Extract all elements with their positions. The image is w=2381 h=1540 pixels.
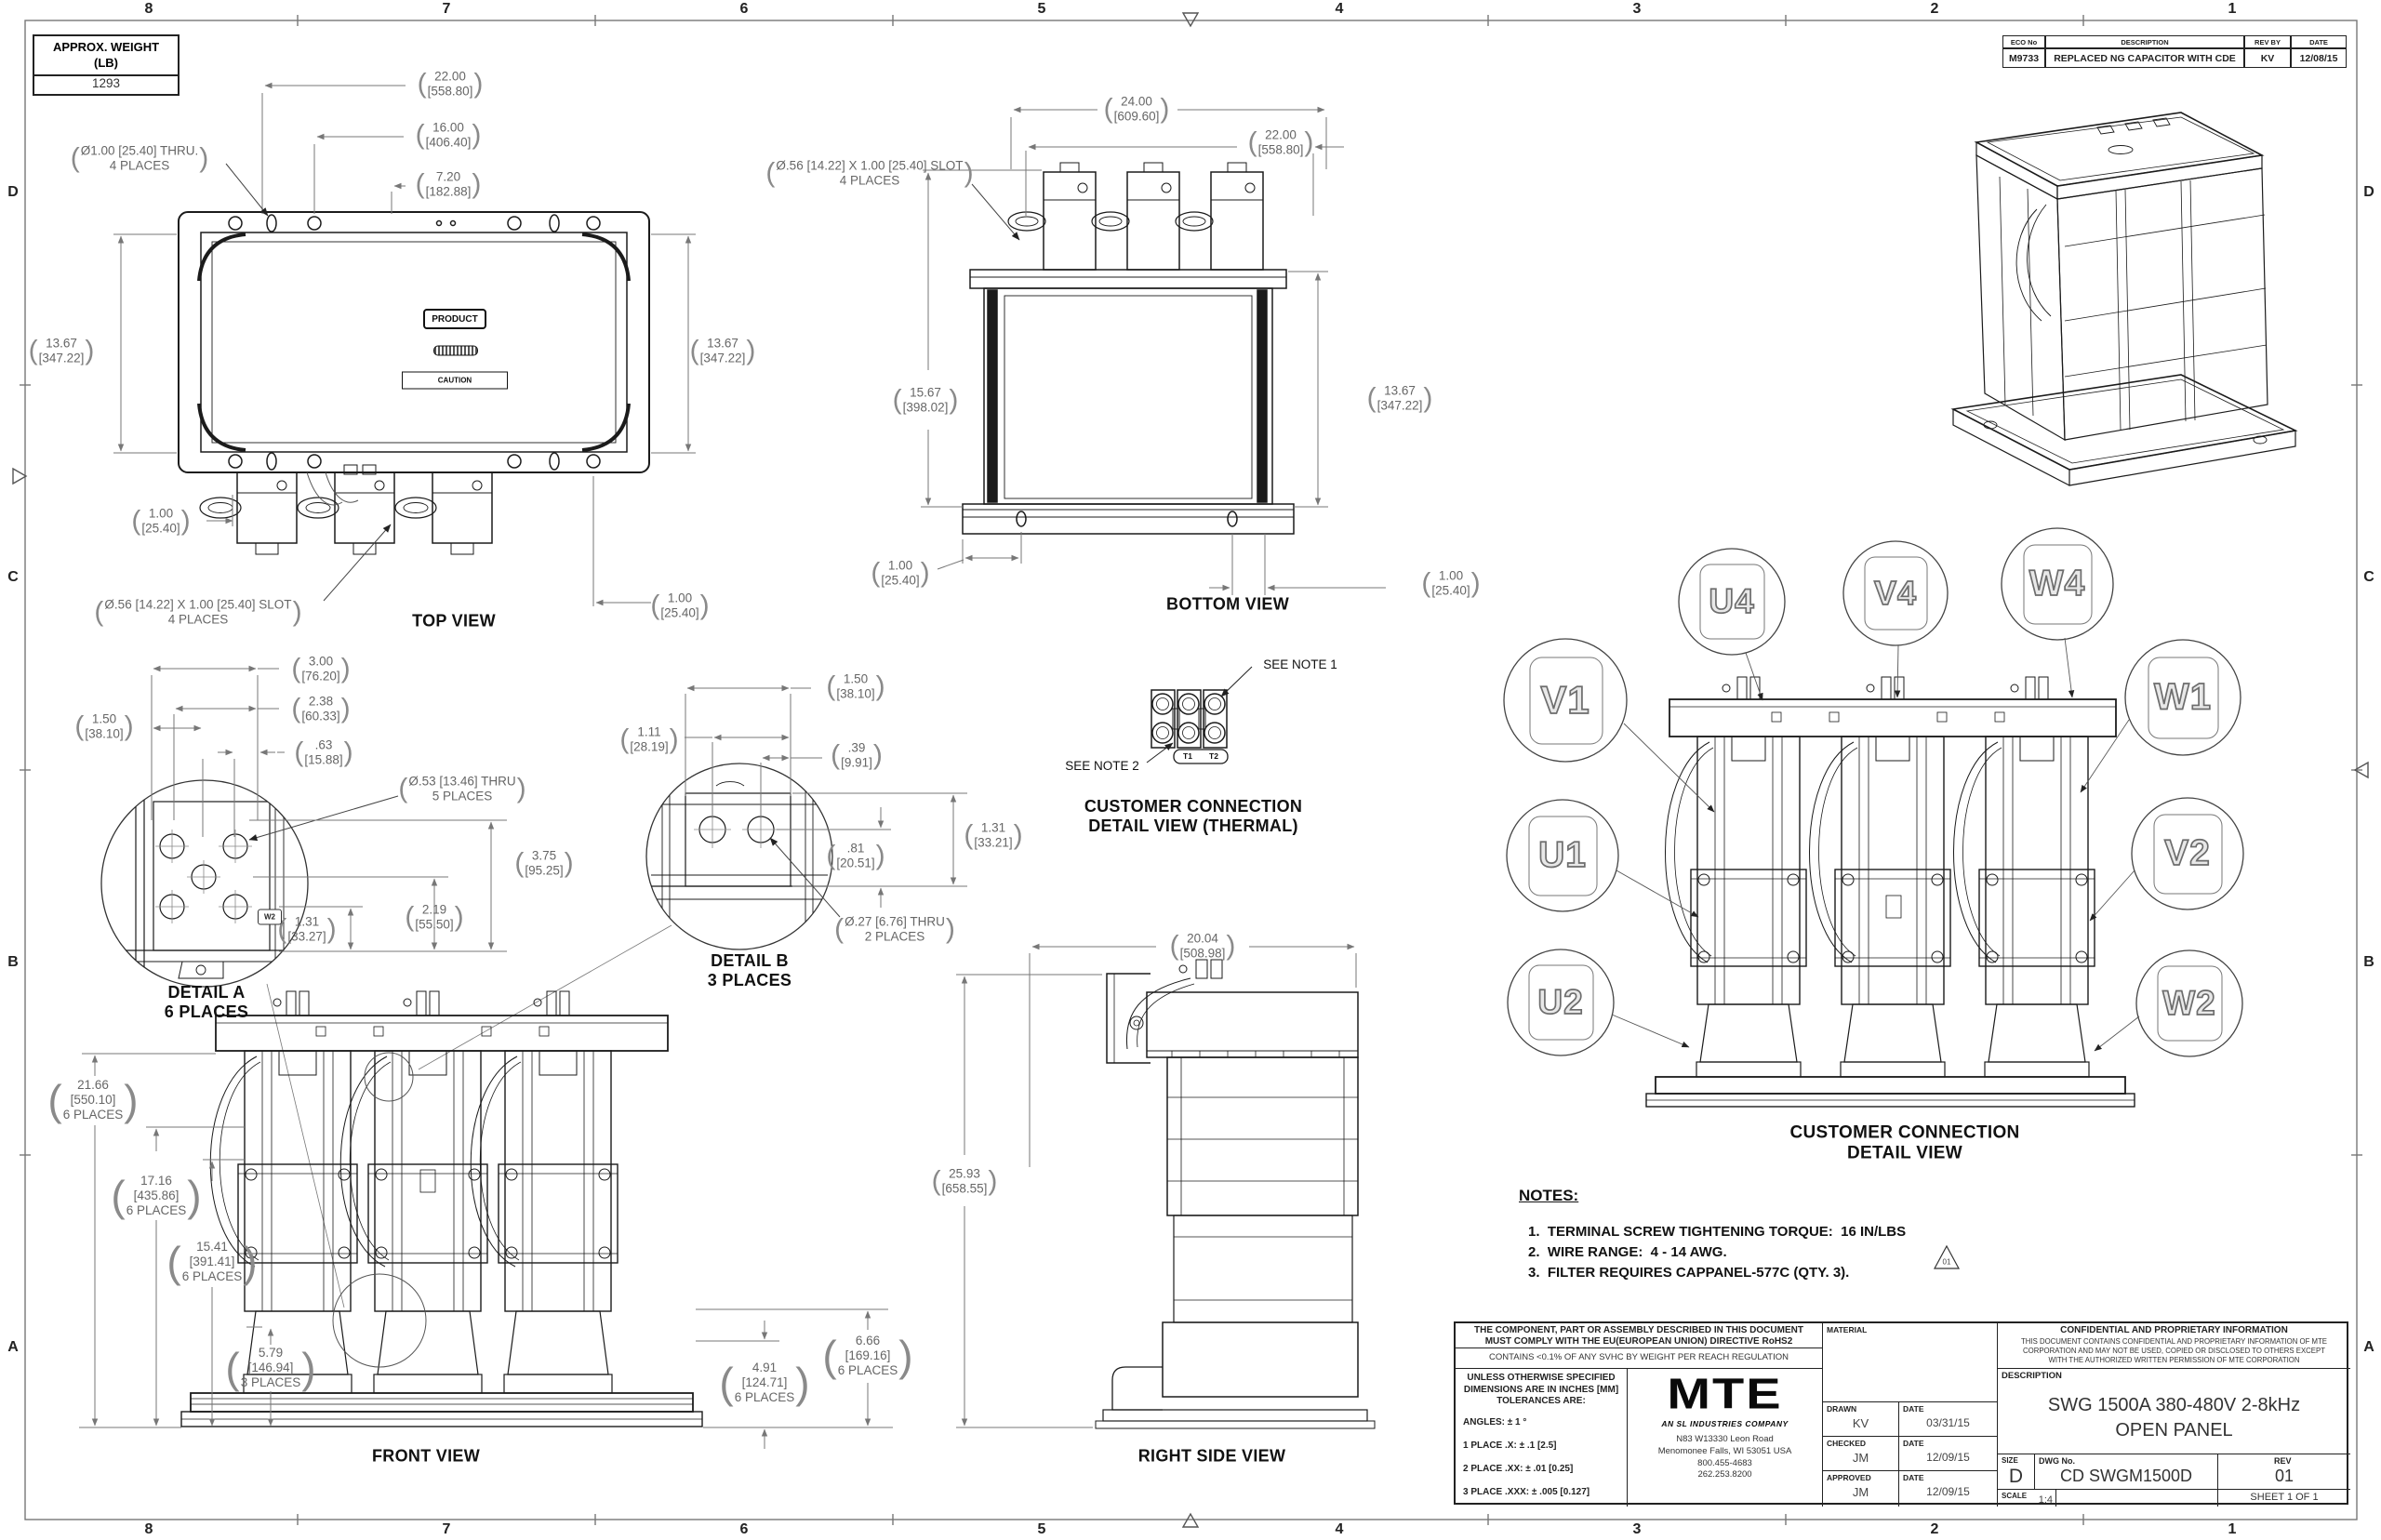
tolerance-angles: ANGLES: ± 1 °	[1463, 1417, 1526, 1427]
thermal-detail-linework	[1147, 667, 1252, 763]
rev-value: 01	[2218, 1467, 2350, 1486]
dim-front-h5: 4.91 [124.71] 6 PLACES	[718, 1358, 810, 1408]
dim-bottom-offset-right: 1.00 [25.40]	[1420, 566, 1481, 599]
zone-col-6-bottom: 6	[740, 1521, 749, 1538]
terminal-u2-label: U2	[1537, 983, 1583, 1022]
zone-col-2-bottom: 2	[1931, 1521, 1939, 1538]
thermal-t1-label: T1	[1183, 751, 1192, 761]
tolerance-place3: 3 PLACE .XXX: ± .005 [0.127]	[1463, 1487, 1590, 1497]
dim-right-depth: 20.04 [508.98]	[1169, 929, 1237, 962]
dim-front-h6: 6.66 [169.16] 6 PLACES	[821, 1331, 913, 1381]
eco-header-description: DESCRIPTION	[2045, 35, 2244, 48]
isometric-view-linework	[1953, 113, 2295, 485]
eco-cell-description: REPLACED NG CAPACITOR WITH CDE	[2045, 48, 2244, 68]
dim-detail-b-2: 1.11 [28.19]	[619, 723, 679, 755]
zone-col-2-top: 2	[1931, 1, 1939, 18]
nameplate-label	[433, 346, 478, 356]
weight-box-value: 1293	[34, 73, 178, 94]
material-label: MATERIAL	[1827, 1325, 1867, 1334]
confidential-body: THIS DOCUMENT CONTAINS CONFIDENTIAL AND …	[1998, 1337, 2350, 1365]
dim-front-h3: 15.41 [391.41] 6 PLACES	[166, 1237, 258, 1287]
tolerance-cell: UNLESS OTHERWISE SPECIFIED DIMENSIONS AR…	[1456, 1369, 1628, 1507]
dwg-number: CD SWGM1500D	[2035, 1467, 2217, 1486]
sheet-cell: SHEET 1 OF 1	[2218, 1490, 2350, 1507]
terminal-u1-label: U1	[1538, 835, 1587, 876]
dwg-label: DWG No.	[2039, 1456, 2075, 1466]
thermal-t2-label: T2	[1209, 751, 1218, 761]
terminal-w2-label: W2	[2162, 984, 2216, 1023]
dim-detail-a-3: 2.38 [60.33]	[290, 692, 351, 724]
approved-label: APPROVED	[1827, 1473, 1871, 1482]
title-bottom-view: BOTTOM VIEW	[1166, 594, 1289, 614]
dim-detail-b-3: .39 [9.91]	[830, 738, 884, 771]
title-thermal-detail: CUSTOMER CONNECTION DETAIL VIEW (THERMAL…	[1084, 797, 1302, 836]
approved-date: 12/09/15	[1899, 1485, 1997, 1498]
drawn-cell: DRAWN KV	[1823, 1402, 1899, 1437]
terminal-v1-label: V1	[1540, 678, 1590, 723]
zone-row-a-right: A	[2363, 1339, 2374, 1356]
eco-header-date: DATE	[2291, 35, 2347, 48]
material-cell: MATERIAL	[1823, 1323, 1998, 1402]
title-detail-a: DETAIL A 6 PLACES	[165, 983, 248, 1022]
note-top-hole: Ø1.00 [25.40] THRU. 4 PLACES	[70, 141, 210, 174]
bottom-view-linework	[963, 163, 1294, 534]
checked-label: CHECKED	[1827, 1439, 1866, 1448]
zone-col-4-top: 4	[1336, 1, 1344, 18]
note-line-2: 2. WIRE RANGE: 4 - 14 AWG.	[1528, 1244, 1727, 1260]
zone-row-c-right: C	[2363, 569, 2374, 586]
dim-detail-b-4: .81 [20.51]	[825, 839, 885, 871]
zone-row-a-left: A	[7, 1339, 19, 1356]
drawn-label: DRAWN	[1827, 1404, 1856, 1414]
logo-cell: MTE AN SL INDUSTRIES COMPANY N83 W13330 …	[1628, 1369, 1823, 1507]
description-label: DESCRIPTION	[2002, 1371, 2062, 1381]
reach-text: CONTAINS <0.1% OF ANY SVHC BY WEIGHT PER…	[1456, 1352, 1822, 1362]
zone-col-7-top: 7	[443, 1, 451, 18]
checked-date-cell: DATE 12/09/15	[1899, 1437, 1998, 1471]
dim-front-h4: 5.79 [146.94] 3 PLACES	[224, 1343, 316, 1393]
size-value: D	[1998, 1466, 2034, 1488]
dim-bottom-offset-left: 1.00 [25.40]	[870, 556, 930, 589]
notes-heading: NOTES:	[1519, 1187, 1578, 1205]
dim-top-width-small: 7.20 [182.88]	[415, 167, 483, 200]
scale-value: 1:4	[2039, 1494, 2053, 1506]
mte-logo: MTE	[1628, 1369, 1822, 1418]
drawn-date-label: DATE	[1903, 1404, 1924, 1414]
tolerance-place1: 1 PLACE .X: ± .1 [2.5]	[1463, 1440, 1557, 1451]
caution-label: CAUTION	[402, 372, 508, 390]
detail-a-terminal-tag: W2	[258, 909, 282, 925]
checked-name: JM	[1823, 1451, 1898, 1465]
dim-detail-a-2: 3.00 [76.20]	[290, 652, 351, 684]
zone-row-b-right: B	[2363, 954, 2374, 971]
title-block: THE COMPONENT, PART OR ASSEMBLY DESCRIBE…	[1454, 1321, 2348, 1505]
note-top-slot: Ø.56 [14.22] X 1.00 [25.40] SLOT 4 PLACE…	[93, 595, 302, 628]
description-cell: DESCRIPTION SWG 1500A 380-480V 2-8kHz OP…	[1998, 1369, 2350, 1454]
size-cell: SIZE D	[1998, 1454, 2035, 1490]
dim-bottom-height-left: 15.67 [398.02]	[892, 383, 960, 416]
eco-cell-date: 12/08/15	[2291, 48, 2347, 68]
scale-cell: SCALE 1:4	[1998, 1490, 2056, 1507]
tolerance-heading: UNLESS OTHERWISE SPECIFIED DIMENSIONS AR…	[1456, 1373, 1627, 1408]
note-rev-flag: 01	[1943, 1258, 1951, 1267]
dim-detail-b-5: 1.31 [33.21]	[963, 818, 1023, 851]
note-bottom-slot: Ø.56 [14.22] X 1.00 [25.40] SLOT 4 PLACE…	[765, 156, 974, 189]
dim-top-offset-left: 1.00 [25.40]	[130, 504, 191, 537]
compliance-text: THE COMPONENT, PART OR ASSEMBLY DESCRIBE…	[1456, 1325, 1822, 1347]
product-label: PRODUCT	[423, 309, 486, 329]
zone-col-8-top: 8	[145, 1, 153, 18]
dim-right-height: 25.93 [658.55]	[931, 1164, 999, 1197]
scale-label: SCALE	[2002, 1492, 2027, 1500]
dim-detail-a-7: 1.31 [33.27]	[276, 912, 337, 945]
weight-box-label: APPROX. WEIGHT (LB)	[34, 36, 178, 76]
checked-date: 12/09/15	[1899, 1451, 1997, 1464]
detail-b-linework	[419, 688, 967, 1069]
eco-header-revby: REV BY	[2244, 35, 2291, 48]
eco-header-no: ECO No	[2002, 35, 2045, 48]
drawing-linework	[0, 0, 2381, 1540]
zone-row-d-left: D	[7, 184, 19, 201]
sheet-value: SHEET 1 OF 1	[2218, 1492, 2350, 1503]
drawn-date-cell: DATE 03/31/15	[1899, 1402, 1998, 1437]
terminal-v4-label: V4	[1874, 574, 1917, 613]
eco-cell-no: M9733	[2002, 48, 2045, 68]
dim-bottom-width-inner: 22.00 [558.80]	[1247, 126, 1315, 158]
approved-date-cell: DATE 12/09/15	[1899, 1471, 1998, 1507]
title-right-side-view: RIGHT SIDE VIEW	[1138, 1446, 1286, 1466]
connection-view-linework	[1504, 528, 2243, 1107]
checked-cell: CHECKED JM	[1823, 1437, 1899, 1471]
dim-top-width: 22.00 [558.80]	[417, 67, 485, 100]
zone-col-5-bottom: 5	[1038, 1521, 1046, 1538]
note-line-1: 1. TERMINAL SCREW TIGHTENING TORQUE: 16 …	[1528, 1224, 1906, 1240]
title-front-view: FRONT VIEW	[372, 1446, 480, 1466]
title-top-view: TOP VIEW	[412, 611, 496, 631]
dim-detail-a-5: 3.75 [95.25]	[513, 846, 574, 879]
title-detail-b: DETAIL B 3 PLACES	[708, 951, 791, 990]
description-text: SWG 1500A 380-480V 2-8kHz OPEN PANEL	[1998, 1393, 2350, 1443]
zone-col-1-bottom: 1	[2228, 1521, 2237, 1538]
dim-bottom-width: 24.00 [609.60]	[1103, 92, 1171, 125]
dim-detail-a-6: 2.19 [55.50]	[404, 900, 464, 933]
confidential-cell: CONFIDENTIAL AND PROPRIETARY INFORMATION…	[1998, 1323, 2350, 1369]
tolerance-place2: 2 PLACE .XX: ± .01 [0.25]	[1463, 1464, 1573, 1474]
mte-address: N83 W13330 Leon Road Menomonee Falls, WI…	[1628, 1434, 1822, 1481]
reach-cell: CONTAINS <0.1% OF ANY SVHC BY WEIGHT PER…	[1456, 1348, 1823, 1369]
weight-box: APPROX. WEIGHT (LB) 1293	[33, 34, 180, 96]
rev-label: REV	[2274, 1456, 2292, 1466]
terminal-w4-label: W4	[2029, 564, 2086, 604]
drawn-date: 03/31/15	[1899, 1416, 1997, 1429]
dim-detail-b-1: 1.50 [38.10]	[825, 670, 885, 702]
dim-bottom-height-right: 13.67 [347.22]	[1366, 381, 1434, 414]
drawing-sheet: 8 7 6 5 4 3 2 1 8 7 6 5 4 3 2 1 D C B A …	[0, 0, 2381, 1540]
dwg-cell: DWG No. CD SWGM1500D	[2035, 1454, 2218, 1490]
eco-cell-revby: KV	[2244, 48, 2291, 68]
size-label: SIZE	[2002, 1456, 2018, 1465]
note-detail-a-hole: Ø.53 [13.46] THRU 5 PLACES	[397, 772, 526, 804]
dim-detail-a-1: 1.50 [38.10]	[73, 710, 134, 742]
drawn-name: KV	[1823, 1416, 1898, 1430]
see-note-1-label: SEE NOTE 1	[1263, 657, 1337, 672]
zone-col-1-top: 1	[2228, 1, 2237, 18]
approved-name: JM	[1823, 1485, 1898, 1499]
terminal-u4-label: U4	[1709, 582, 1754, 621]
zone-col-3-top: 3	[1633, 1, 1642, 18]
note-detail-b-hole: Ø.27 [6.76] THRU 2 PLACES	[833, 912, 956, 945]
dim-detail-a-4: .63 [15.88]	[293, 736, 353, 768]
right-side-view-dimensions	[956, 947, 1356, 1427]
note-line-3: 3. FILTER REQUIRES CAPPANEL-577C (QTY. 3…	[1528, 1265, 1849, 1281]
mte-tagline: AN SL INDUSTRIES COMPANY	[1628, 1419, 1822, 1428]
approved-date-label: DATE	[1903, 1473, 1924, 1482]
zone-row-d-right: D	[2363, 184, 2374, 201]
dim-front-h2: 17.16 [435.86] 6 PLACES	[110, 1171, 202, 1221]
compliance-cell: THE COMPONENT, PART OR ASSEMBLY DESCRIBE…	[1456, 1323, 1823, 1348]
title-connection-view: CUSTOMER CONNECTION DETAIL VIEW	[1789, 1123, 2019, 1165]
right-side-view-linework	[1096, 960, 1375, 1428]
confidential-heading: CONFIDENTIAL AND PROPRIETARY INFORMATION	[1998, 1325, 2350, 1335]
zone-row-b-left: B	[7, 954, 19, 971]
zone-col-5-top: 5	[1038, 1, 1046, 18]
zone-col-3-bottom: 3	[1633, 1521, 1642, 1538]
terminal-w1-label: W1	[2154, 677, 2212, 719]
approved-cell: APPROVED JM	[1823, 1471, 1899, 1507]
dim-top-height-left: 13.67 [347.22]	[28, 334, 96, 366]
dim-top-height-right: 13.67 [347.22]	[689, 334, 757, 366]
dim-top-offset-right: 1.00 [25.40]	[649, 589, 710, 621]
checked-date-label: DATE	[1903, 1439, 1924, 1448]
zone-col-4-bottom: 4	[1336, 1521, 1344, 1538]
terminal-v2-label: V2	[2164, 833, 2211, 874]
dim-front-h1: 21.66 [550.10] 6 PLACES	[47, 1075, 139, 1125]
scale-spacer-cell	[2056, 1490, 2218, 1507]
rev-cell: REV 01	[2218, 1454, 2350, 1490]
zone-col-6-top: 6	[740, 1, 749, 18]
zone-row-c-left: C	[7, 569, 19, 586]
see-note-2-label: SEE NOTE 2	[1065, 759, 1139, 774]
dim-top-width-inner: 16.00 [406.40]	[415, 118, 483, 151]
zone-col-8-bottom: 8	[145, 1521, 153, 1538]
zone-col-7-bottom: 7	[443, 1521, 451, 1538]
